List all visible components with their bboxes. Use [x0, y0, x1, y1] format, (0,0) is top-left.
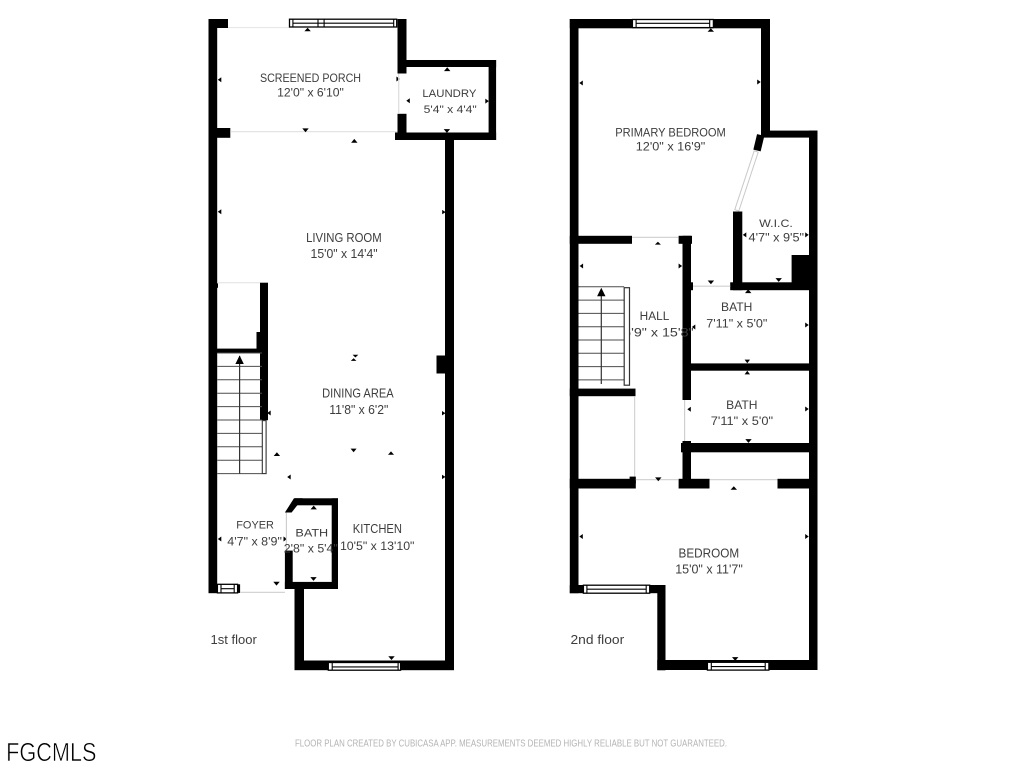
- svg-text:FGCMLS: FGCMLS: [6, 739, 96, 767]
- svg-text:2nd floor: 2nd floor: [571, 633, 625, 647]
- svg-text:DINING AREA: DINING AREA: [322, 385, 394, 400]
- svg-text:5'4" x 4'4": 5'4" x 4'4": [424, 104, 477, 116]
- svg-text:4'7" x 9'5": 4'7" x 9'5": [749, 231, 805, 245]
- svg-text:SCREENED PORCH: SCREENED PORCH: [260, 71, 361, 85]
- svg-text:FLOOR PLAN CREATED BY CUBICASA: FLOOR PLAN CREATED BY CUBICASA APP. MEAS…: [295, 739, 727, 750]
- svg-text:KITCHEN: KITCHEN: [353, 521, 402, 536]
- svg-text:LAUNDRY: LAUNDRY: [422, 88, 477, 100]
- svg-text:7'11" x 5'0": 7'11" x 5'0": [706, 317, 767, 331]
- svg-text:HALL: HALL: [640, 311, 670, 323]
- svg-text:BATH: BATH: [726, 398, 757, 412]
- svg-text:1st floor: 1st floor: [211, 633, 257, 647]
- svg-text:2'8" x 5'4": 2'8" x 5'4": [284, 542, 338, 556]
- svg-text:15'0" x 14'4": 15'0" x 14'4": [311, 247, 378, 261]
- svg-text:BEDROOM: BEDROOM: [679, 546, 740, 561]
- svg-text:12'0" x 6'10": 12'0" x 6'10": [277, 86, 344, 100]
- svg-text:7'11" x 5'0": 7'11" x 5'0": [711, 414, 773, 428]
- svg-text:6'9" x 15'8": 6'9" x 15'8": [623, 326, 694, 340]
- svg-text:BATH: BATH: [721, 300, 752, 314]
- svg-text:BATH: BATH: [295, 528, 328, 540]
- svg-text:LIVING ROOM: LIVING ROOM: [306, 230, 382, 245]
- svg-text:4'7" x 8'9": 4'7" x 8'9": [227, 534, 282, 548]
- svg-text:15'0" x 11'7": 15'0" x 11'7": [675, 563, 743, 577]
- svg-text:10'5" x 13'10": 10'5" x 13'10": [340, 539, 415, 553]
- svg-text:12'0" x 16'9": 12'0" x 16'9": [636, 140, 706, 154]
- svg-text:PRIMARY BEDROOM: PRIMARY BEDROOM: [615, 125, 726, 139]
- svg-text:FOYER: FOYER: [236, 520, 274, 532]
- svg-text:11'8" x 6'2": 11'8" x 6'2": [329, 403, 388, 417]
- svg-text:W.I.C.: W.I.C.: [759, 218, 793, 230]
